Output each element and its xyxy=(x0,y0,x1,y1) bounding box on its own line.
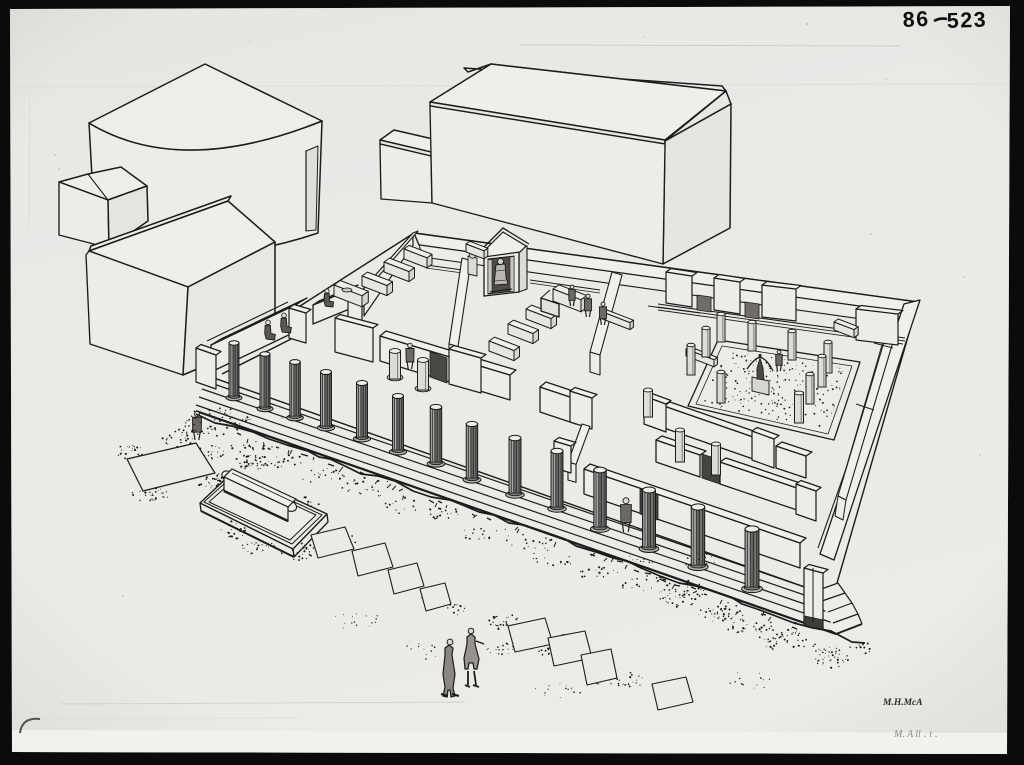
svg-text:M. All.t.: M. All.t. xyxy=(893,729,938,740)
svg-text:86: 86 xyxy=(902,7,930,32)
svg-text:523: 523 xyxy=(946,8,987,33)
svg-text:M.H.McA: M.H.McA xyxy=(882,698,923,708)
